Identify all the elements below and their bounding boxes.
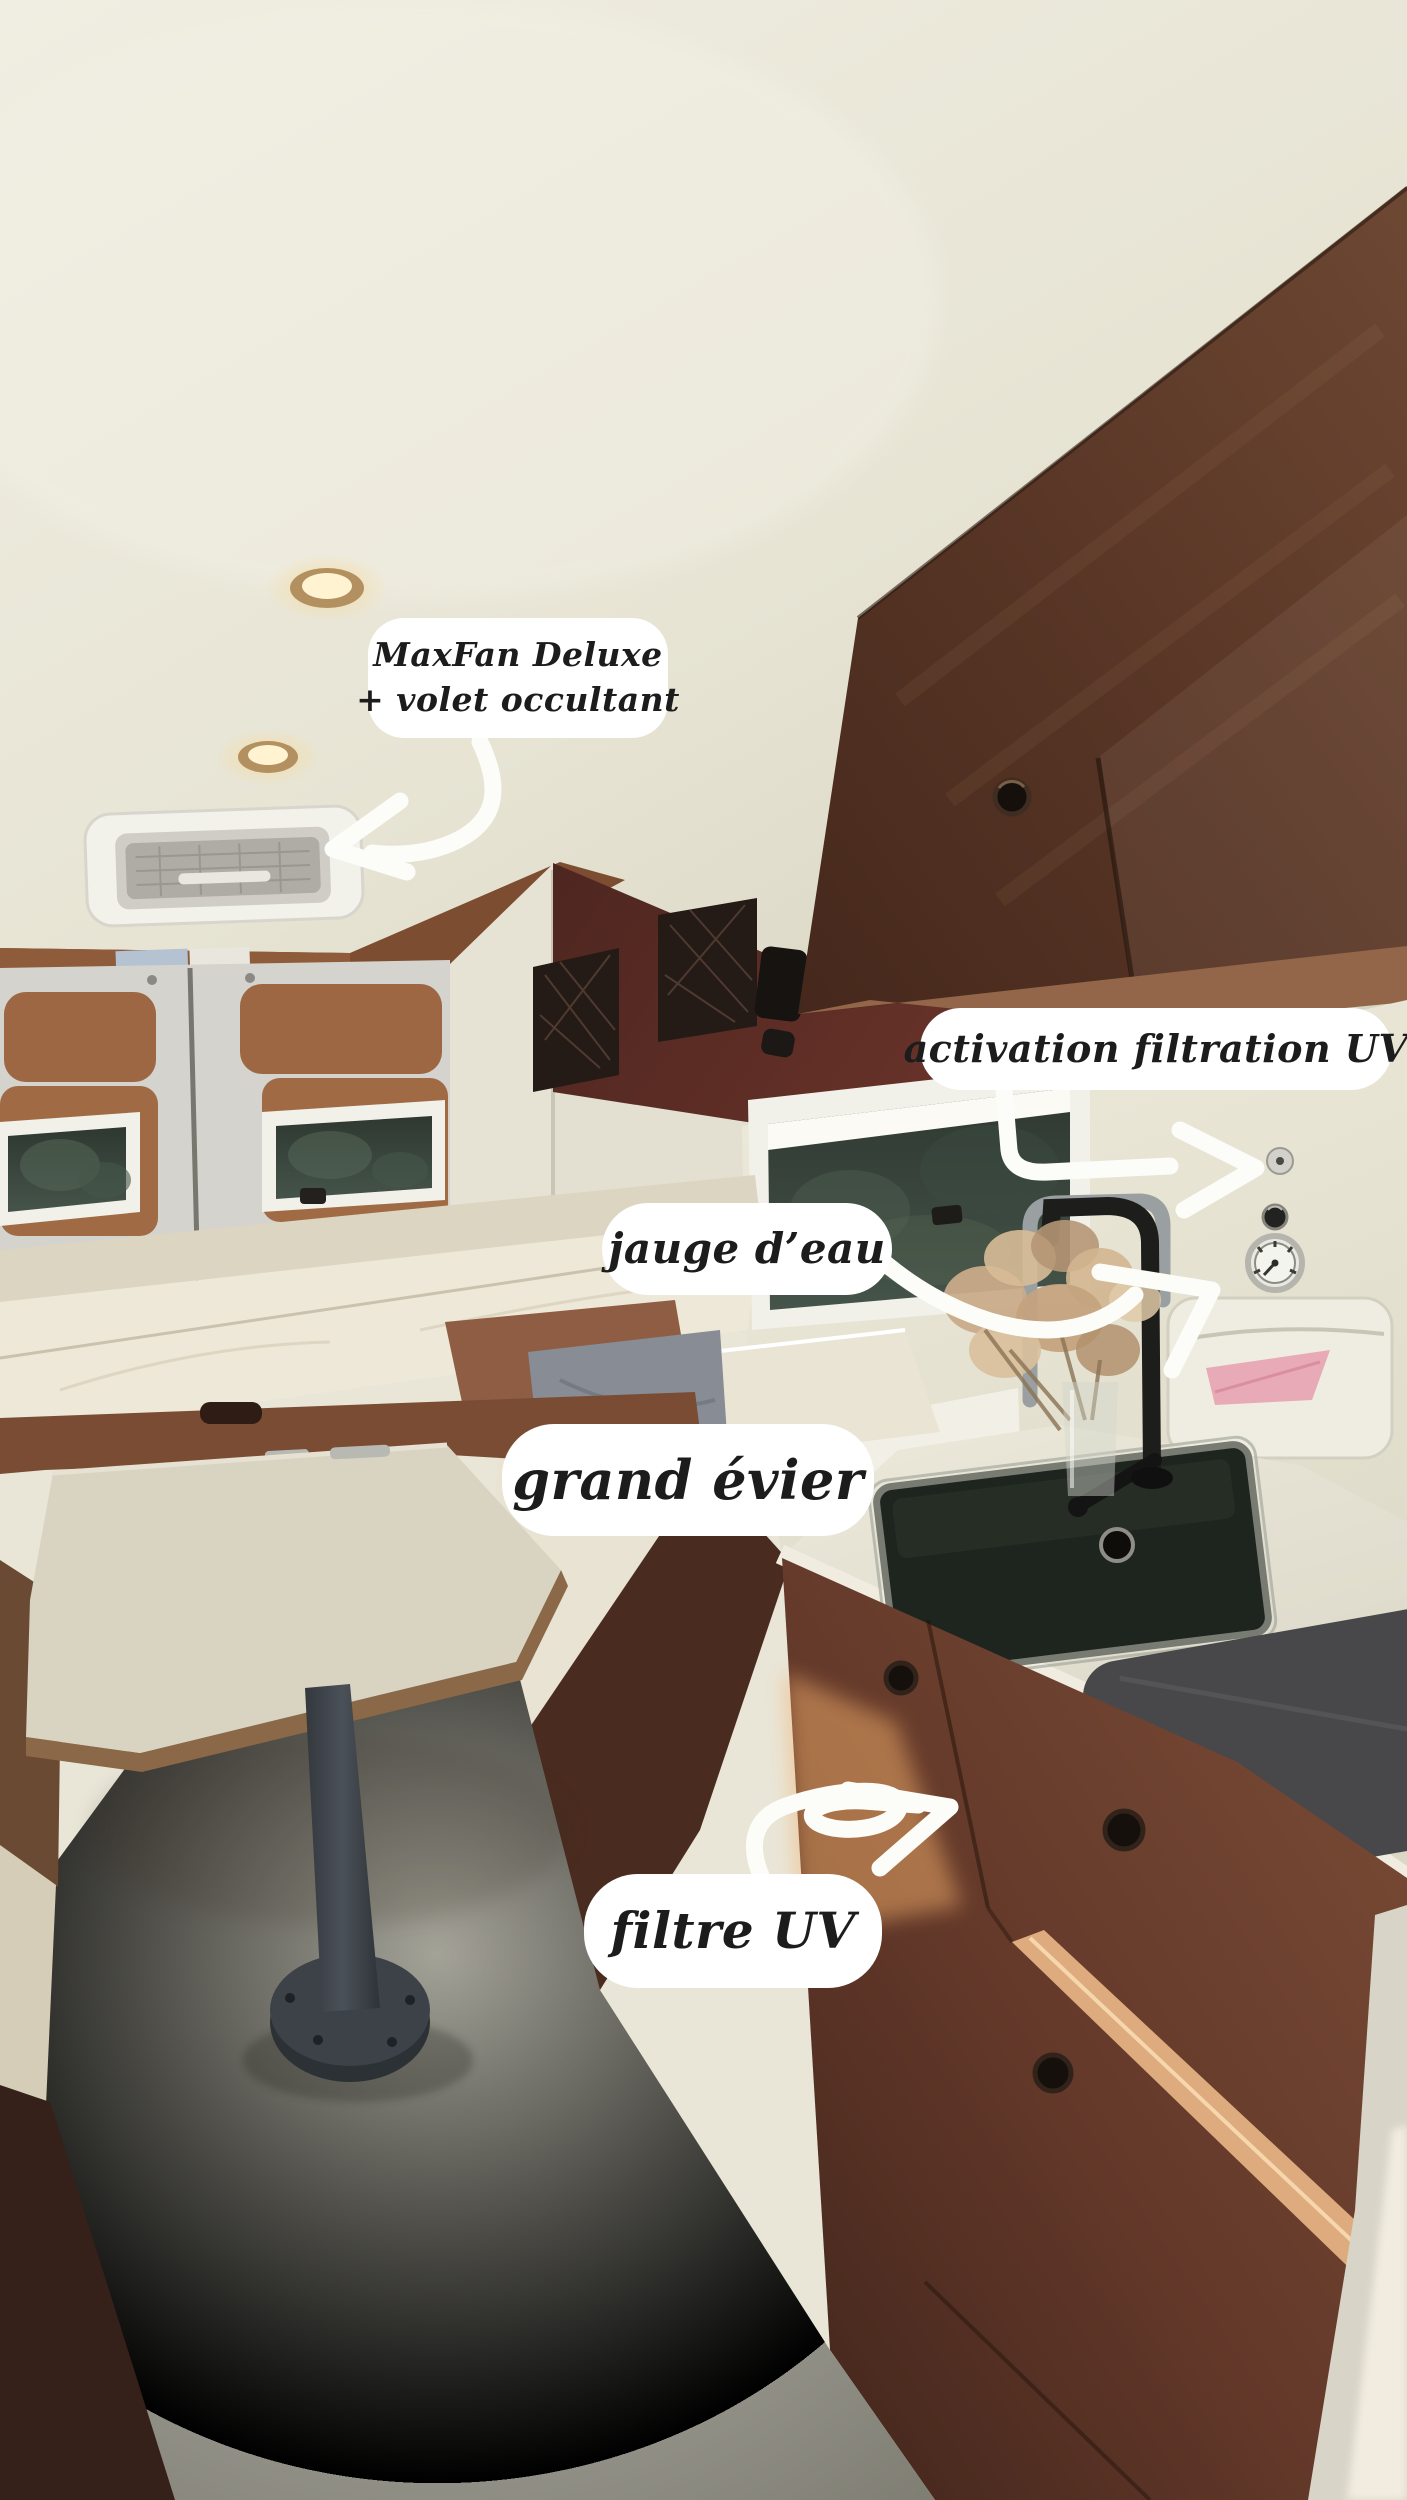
door-window-left bbox=[0, 1112, 140, 1226]
annotation-maxfan-line2: + volet occultant bbox=[356, 678, 680, 723]
door-window-right bbox=[262, 1100, 445, 1212]
uv-filter-button bbox=[1263, 1205, 1287, 1229]
annotation-maxfan-line1: MaxFan Deluxe bbox=[373, 633, 662, 678]
annotation-grand-evier: grand évier bbox=[502, 1424, 874, 1536]
water-gauge bbox=[1248, 1236, 1302, 1290]
annotation-maxfan: MaxFan Deluxe + volet occultant bbox=[368, 618, 668, 738]
annotation-evier-text: grand évier bbox=[512, 1444, 864, 1517]
annotation-jauge-text: jauge d’eau bbox=[608, 1221, 886, 1278]
annotation-jauge-eau: jauge d’eau bbox=[602, 1203, 892, 1295]
annotation-activation-filtration: activation filtration UV bbox=[920, 1008, 1392, 1090]
annotated-van-photo: MaxFan Deluxe + volet occultant activati… bbox=[0, 0, 1407, 2500]
annotation-filtre-text: filtre UV bbox=[610, 1897, 855, 1965]
cabinet-handle-icon bbox=[995, 780, 1029, 814]
annotation-activation-text: activation filtration UV bbox=[904, 1023, 1407, 1074]
annotation-filtre-uv: filtre UV bbox=[584, 1874, 882, 1988]
drain-icon bbox=[1101, 1529, 1133, 1561]
roof-vent-maxfan bbox=[84, 805, 364, 927]
